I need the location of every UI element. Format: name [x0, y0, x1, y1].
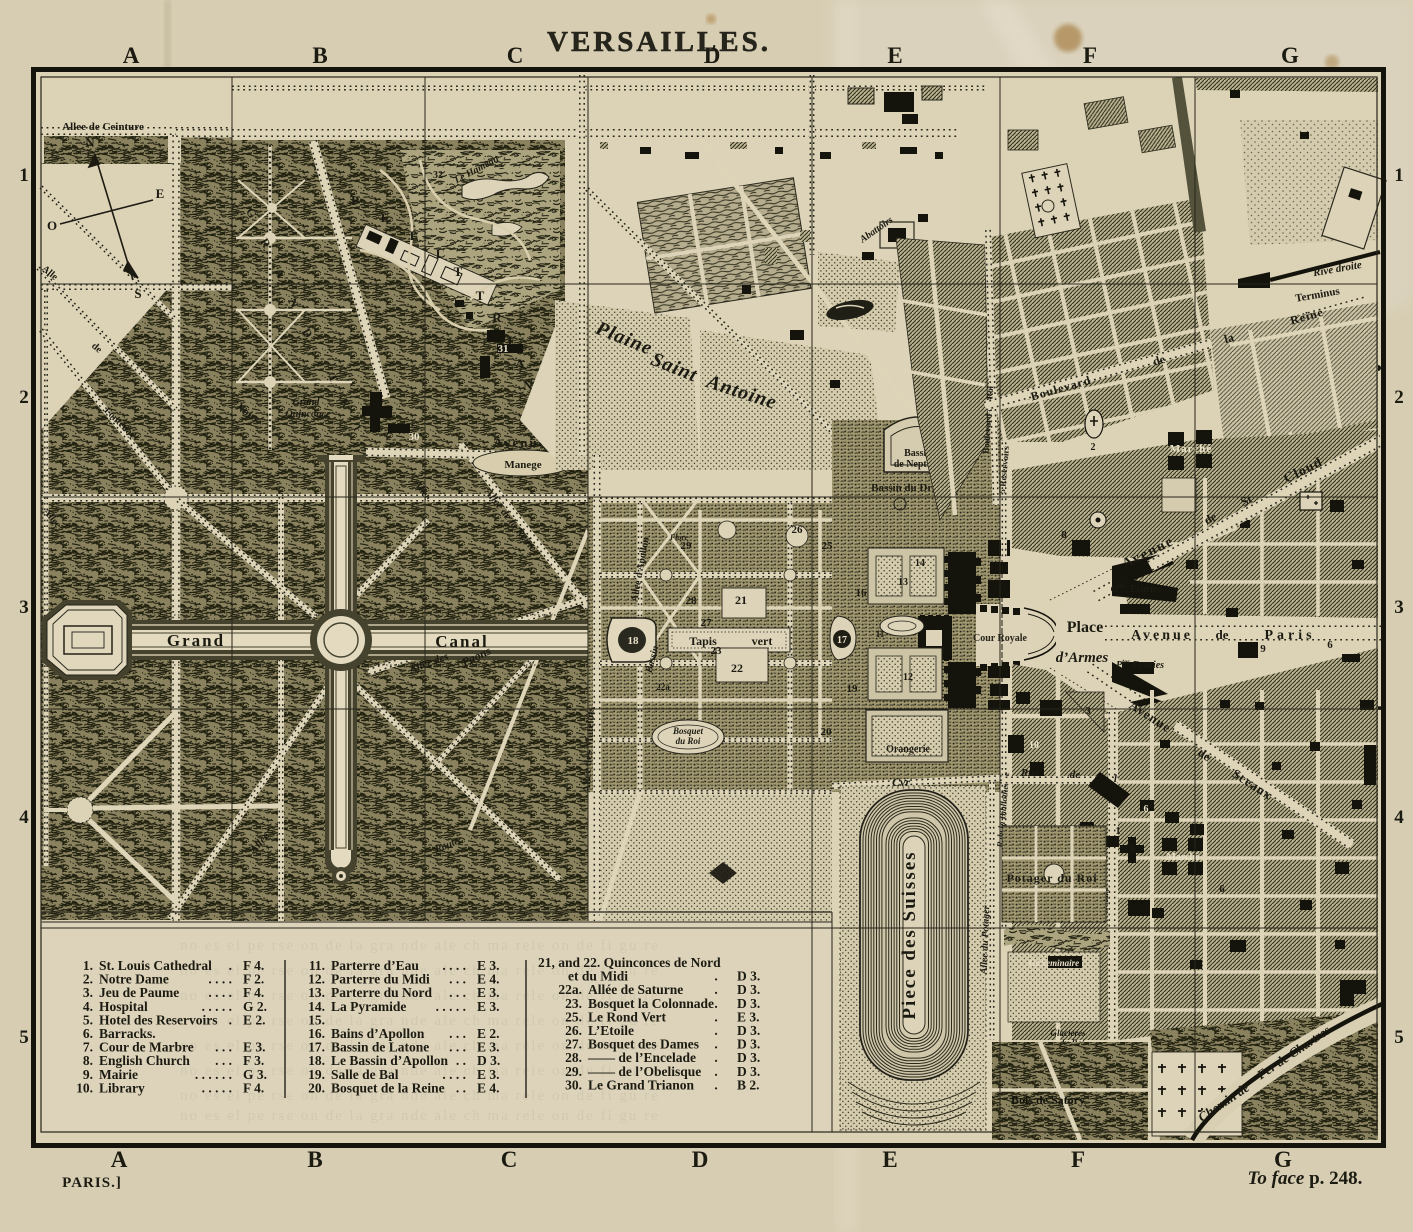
svg-text:18: 18 — [628, 635, 640, 647]
svg-text:Bois de Satory: Bois de Satory — [1011, 1093, 1085, 1107]
svg-text:11: 11 — [876, 629, 885, 639]
svg-text:Gd Seminaire: Gd Seminaire — [1029, 958, 1079, 968]
svg-text:no es el pe rse on de la gra n: no es el pe rse on de la gra nde ale ch … — [180, 938, 660, 954]
svg-text:de: de — [1216, 627, 1229, 642]
svg-text:du Roi: du Roi — [676, 736, 701, 746]
svg-text:Avenue: Avenue — [1131, 628, 1193, 643]
svg-text:Bosquet: Bosquet — [672, 726, 704, 736]
svg-text:Glacieres: Glacieres — [1051, 1028, 1086, 1038]
svg-text:E: E — [381, 210, 390, 225]
svg-text:21: 21 — [735, 593, 747, 607]
svg-text:Manege: Manege — [504, 459, 541, 471]
svg-text:.: . — [714, 1077, 717, 1092]
svg-text:no es el pe rse on de la gra n: no es el pe rse on de la gra nde ale ch … — [180, 1038, 660, 1054]
svg-text:2: 2 — [1091, 442, 1096, 453]
svg-text:E: E — [887, 43, 902, 68]
svg-text:E: E — [882, 1147, 897, 1172]
svg-text:no es el pe rse on de la gra n: no es el pe rse on de la gra nde ale ch … — [180, 963, 660, 979]
svg-text:Grand: Grand — [293, 397, 321, 408]
svg-text:R: R — [492, 310, 502, 325]
svg-text:30: 30 — [409, 431, 421, 443]
svg-text:9: 9 — [1260, 643, 1266, 655]
svg-text:20: 20 — [821, 726, 833, 738]
svg-text:12: 12 — [903, 672, 913, 683]
svg-text:6: 6 — [1219, 883, 1225, 895]
svg-text:6: 6 — [1130, 843, 1136, 855]
svg-text:no es el pe rse on de la gra n: no es el pe rse on de la gra nde ale ch … — [180, 1088, 660, 1104]
svg-text:P: P — [351, 193, 359, 208]
svg-text:C: C — [507, 43, 524, 68]
svg-text:no es el pe rse on de la gra n: no es el pe rse on de la gra nde ale ch … — [180, 1013, 660, 1029]
svg-text:To face p. 248.: To face p. 248. — [1248, 1168, 1363, 1189]
svg-text:5: 5 — [1394, 1027, 1404, 1048]
svg-text:25: 25 — [822, 540, 834, 552]
svg-text:no es el pe rse on de la gra n: no es el pe rse on de la gra nde ale ch … — [180, 988, 660, 1004]
svg-text:VERSAILLES.: VERSAILLES. — [547, 26, 771, 58]
svg-text:23: 23 — [711, 645, 723, 657]
svg-text:10: 10 — [1029, 740, 1039, 751]
svg-text:28: 28 — [686, 595, 698, 607]
svg-text:19: 19 — [847, 683, 859, 695]
svg-text:B: B — [307, 1147, 322, 1172]
svg-text:Library: Library — [99, 1080, 145, 1095]
svg-text:D: D — [704, 43, 721, 68]
svg-text:3: 3 — [1394, 597, 1404, 618]
svg-text:T: T — [454, 264, 463, 279]
svg-text:27: 27 — [701, 617, 713, 629]
svg-text:3: 3 — [19, 597, 29, 618]
svg-text:10.: 10. — [76, 1080, 93, 1095]
svg-text:16: 16 — [856, 587, 868, 599]
svg-text:17: 17 — [837, 635, 847, 646]
svg-text:A: A — [111, 1147, 128, 1172]
svg-text:Rue: Rue — [1020, 767, 1039, 779]
svg-text:A: A — [515, 356, 525, 371]
svg-text:O: O — [47, 218, 57, 233]
svg-text:D: D — [692, 1147, 709, 1172]
svg-text:T: T — [408, 228, 417, 243]
svg-text:Grand: Grand — [167, 631, 225, 650]
svg-text:no es el pe rse on de la gra n: no es el pe rse on de la gra nde ale ch … — [180, 1063, 660, 1079]
svg-text:I: I — [435, 246, 440, 261]
svg-text:vert: vert — [752, 634, 773, 648]
svg-text:T: T — [476, 288, 485, 303]
svg-text:S: S — [134, 286, 141, 301]
svg-text:2: 2 — [1394, 387, 1404, 408]
svg-text:Piece des Suisses: Piece des Suisses — [899, 850, 920, 1019]
svg-text:I: I — [507, 333, 512, 348]
svg-text:Allee de Ceinture: Allee de Ceinture — [62, 121, 144, 133]
svg-text:6: 6 — [1327, 639, 1333, 651]
svg-text:8: 8 — [1061, 529, 1067, 541]
svg-text:Potager du Roi: Potager du Roi — [1006, 871, 1097, 885]
svg-text:Quinconce: Quinconce — [286, 409, 332, 420]
svg-text:A: A — [123, 43, 140, 68]
svg-text:14: 14 — [915, 558, 925, 569]
svg-text:Marché: Marché — [1170, 443, 1212, 455]
svg-text:2: 2 — [19, 387, 29, 408]
svg-text:F: F — [1071, 1147, 1085, 1172]
svg-text:F: F — [1083, 43, 1097, 68]
svg-text:no es el pe rse on de la gra n: no es el pe rse on de la gra nde ale ch … — [180, 1108, 660, 1124]
svg-text:C: C — [501, 1147, 518, 1172]
svg-text:Paris: Paris — [1264, 628, 1315, 643]
svg-text:3: 3 — [1085, 705, 1091, 717]
svg-text:d’Armes: d’Armes — [1056, 650, 1109, 666]
svg-text:G: G — [1281, 43, 1299, 68]
svg-text:PARIS.]: PARIS.] — [62, 1175, 122, 1191]
svg-text:1: 1 — [1116, 826, 1121, 837]
svg-text:22a: 22a — [656, 682, 670, 692]
svg-text:B: B — [312, 43, 327, 68]
svg-text:26: 26 — [792, 524, 804, 536]
svg-text:1: 1 — [19, 165, 29, 186]
svg-text:N: N — [85, 135, 95, 150]
svg-text:5: 5 — [19, 1027, 29, 1048]
svg-text:6: 6 — [1144, 804, 1149, 815]
svg-text:13: 13 — [898, 577, 908, 588]
svg-text:B 2.: B 2. — [737, 1077, 760, 1092]
svg-text:4: 4 — [19, 807, 29, 828]
svg-text:1: 1 — [1394, 165, 1404, 186]
svg-text:Flore: Flore — [669, 533, 689, 542]
svg-text:32: 32 — [433, 170, 443, 181]
svg-text:E: E — [156, 186, 165, 201]
svg-text:Place: Place — [1067, 619, 1103, 636]
svg-text:22: 22 — [731, 661, 743, 675]
svg-text:de: de — [1070, 769, 1081, 781]
svg-text:4: 4 — [1394, 807, 1404, 828]
svg-text:Orangerie: Orangerie — [886, 744, 930, 755]
